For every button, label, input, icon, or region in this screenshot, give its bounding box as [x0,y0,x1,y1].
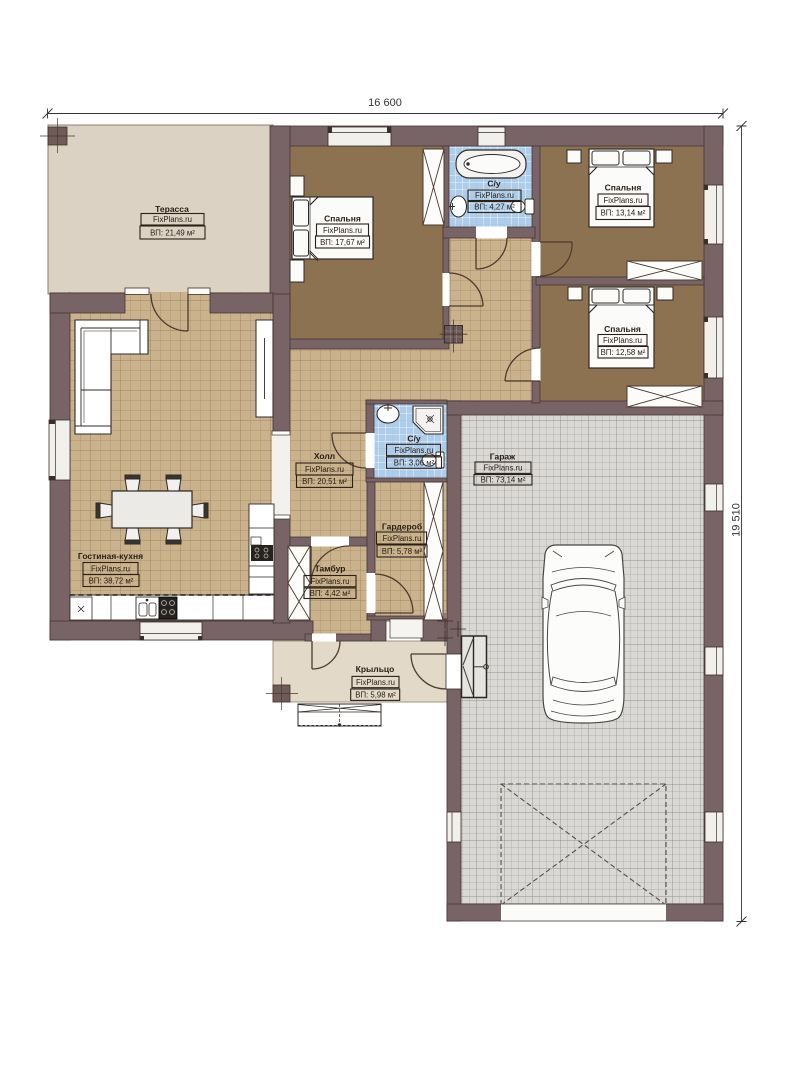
svg-text:16 600: 16 600 [368,97,402,109]
svg-text:Терасса: Терасса [155,204,189,214]
svg-text:Гараж: Гараж [490,452,516,462]
svg-text:ВП: 4,27 м²: ВП: 4,27 м² [474,203,515,212]
svg-text:Холл: Холл [314,451,335,461]
svg-text:С/у: С/у [407,434,421,444]
svg-text:ВП: 17,67 м²: ВП: 17,67 м² [320,238,365,247]
svg-text:Тамбур: Тамбур [315,564,346,574]
svg-text:С/у: С/у [487,179,501,189]
svg-text:FixPlans.ru: FixPlans.ru [305,465,344,474]
svg-text:ВП: 5,98 м²: ВП: 5,98 м² [355,690,396,699]
svg-text:ВП: 5,78 м²: ВП: 5,78 м² [382,547,423,556]
svg-text:FixPlans.ru: FixPlans.ru [356,678,395,687]
svg-text:Гардероб: Гардероб [382,522,422,532]
svg-text:FixPlans.ru: FixPlans.ru [604,196,643,205]
svg-text:ВП: 13,14 м²: ВП: 13,14 м² [601,209,646,218]
svg-text:FixPlans.ru: FixPlans.ru [484,463,523,472]
svg-text:FixPlans.ru: FixPlans.ru [323,226,362,235]
svg-text:ВП: 3,06 м²: ВП: 3,06 м² [394,458,435,467]
svg-text:Спальня: Спальня [324,214,361,224]
svg-text:FixPlans.ru: FixPlans.ru [395,446,434,455]
svg-text:Спальня: Спальня [605,183,642,193]
svg-text:19 510: 19 510 [731,503,743,537]
svg-text:ВП: 73,14 м²: ВП: 73,14 м² [481,476,526,485]
svg-text:FixPlans.ru: FixPlans.ru [383,534,422,543]
svg-text:Крыльцо: Крыльцо [356,664,395,674]
svg-text:ВП: 12,58 м²: ВП: 12,58 м² [601,348,646,357]
svg-text:ВП: 20,51 м²: ВП: 20,51 м² [302,477,347,486]
svg-text:ВП: 4,42 м²: ВП: 4,42 м² [310,589,351,598]
svg-text:FixPlans.ru: FixPlans.ru [153,215,192,224]
svg-text:ВП: 21,49 м²: ВП: 21,49 м² [150,228,195,237]
svg-text:ВП: 38,72 м²: ВП: 38,72 м² [89,576,134,585]
svg-text:FixPlans.ru: FixPlans.ru [91,564,130,573]
svg-text:Гостиная-кухня: Гостиная-кухня [78,551,143,561]
svg-text:Спальня: Спальня [604,324,641,334]
svg-text:FixPlans.ru: FixPlans.ru [475,191,514,200]
svg-text:FixPlans.ru: FixPlans.ru [311,577,350,586]
svg-text:FixPlans.ru: FixPlans.ru [603,336,642,345]
